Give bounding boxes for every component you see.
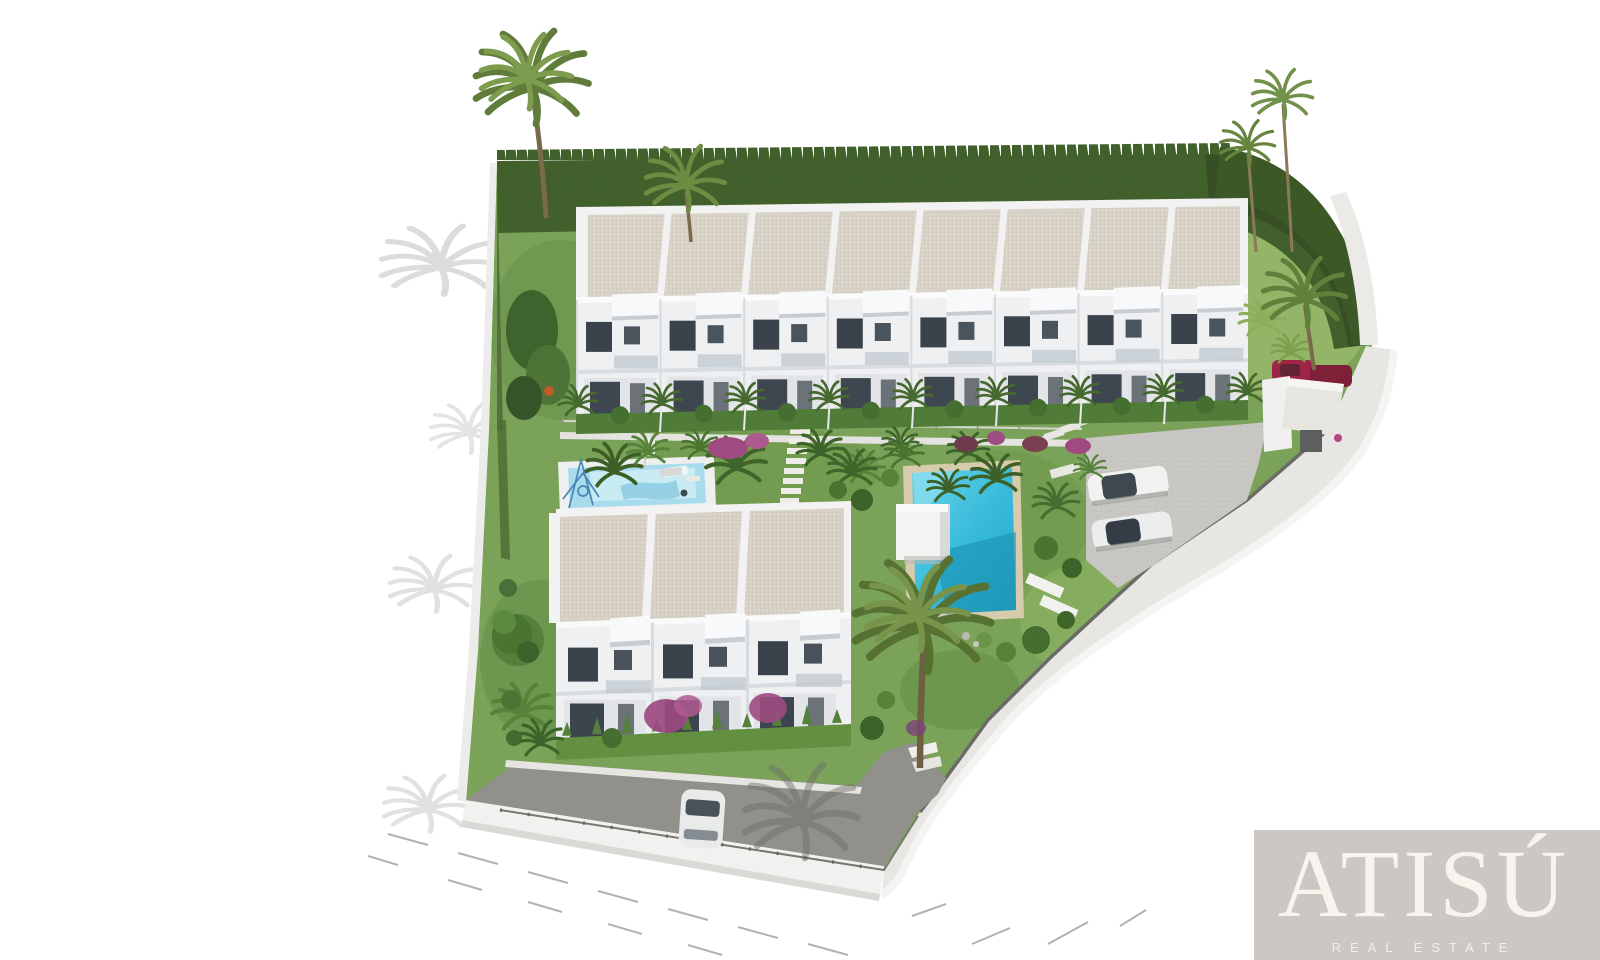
svg-text:REAL ESTATE: REAL ESTATE — [1332, 940, 1517, 955]
svg-text:ATISÚ: ATISÚ — [1278, 830, 1570, 937]
